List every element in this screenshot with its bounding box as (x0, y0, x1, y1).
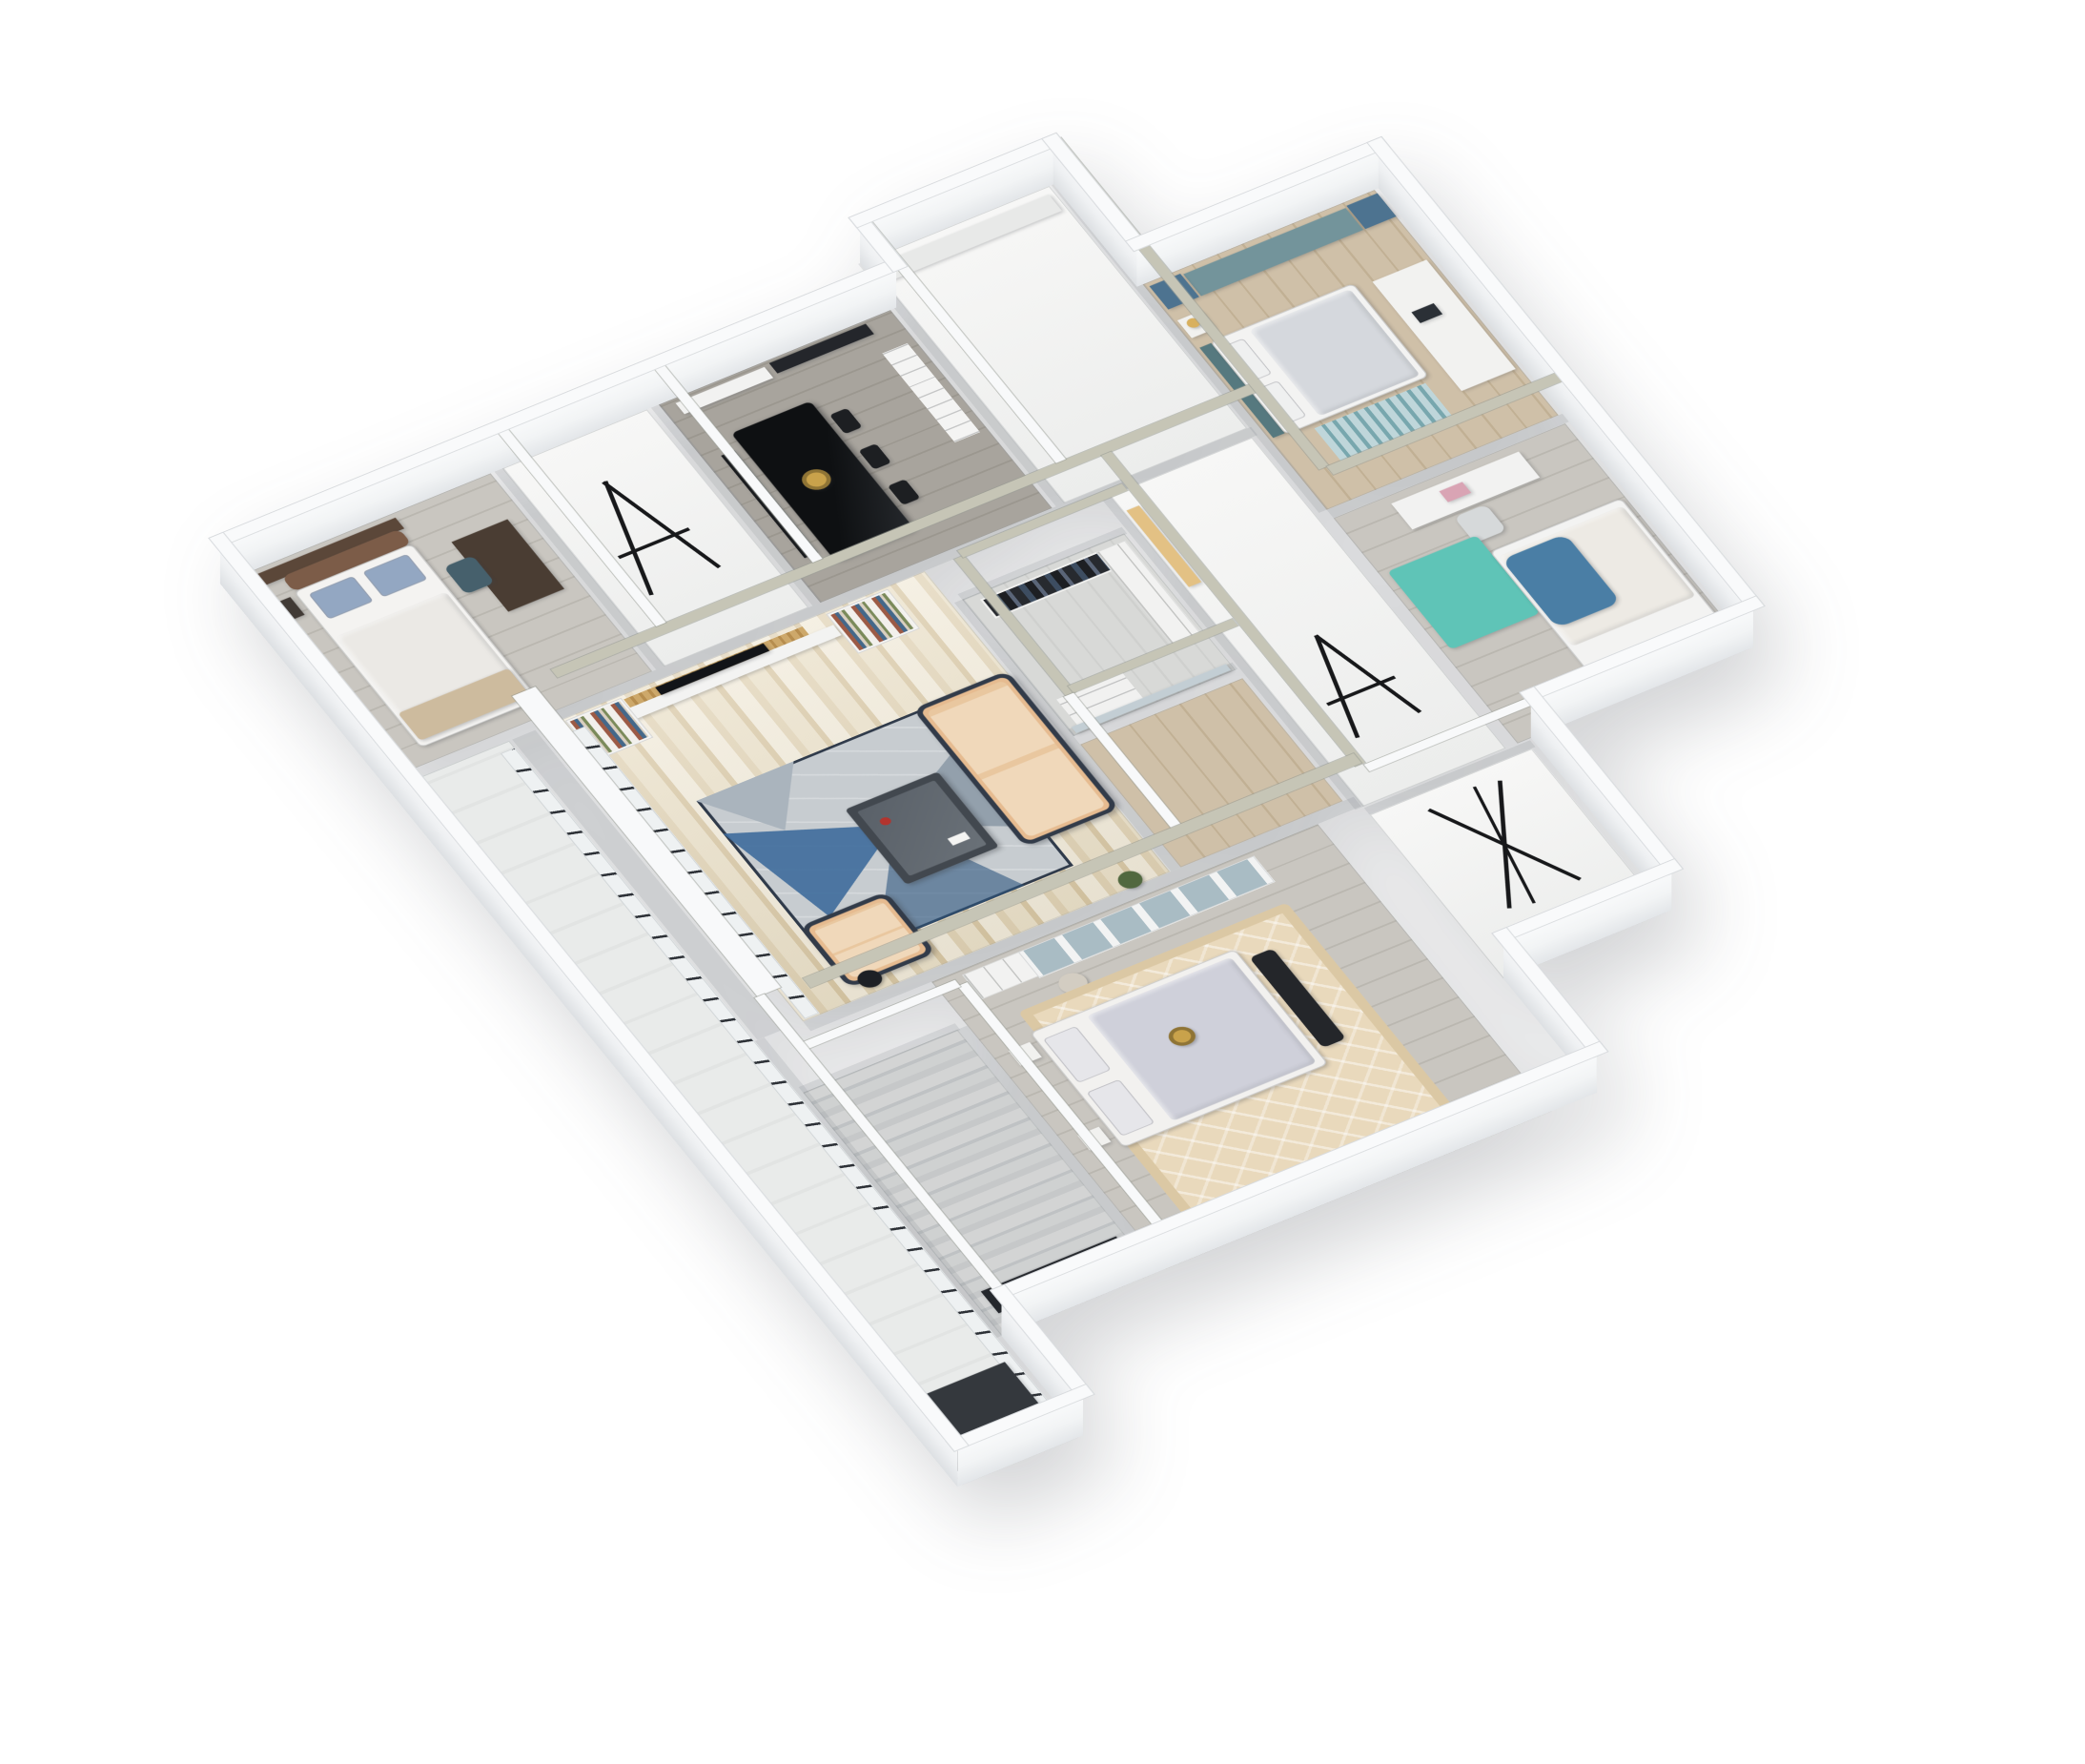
pillow (362, 554, 427, 597)
rack-bar (1473, 787, 1536, 904)
page-background (0, 0, 2085, 1764)
rack-bar (1498, 781, 1512, 909)
floor-plan-3d (215, 123, 2085, 1533)
deco1 (878, 816, 893, 827)
building-shadow (0, 0, 2085, 1764)
rack-bar (1427, 809, 1582, 881)
rack-bar (1326, 676, 1396, 707)
